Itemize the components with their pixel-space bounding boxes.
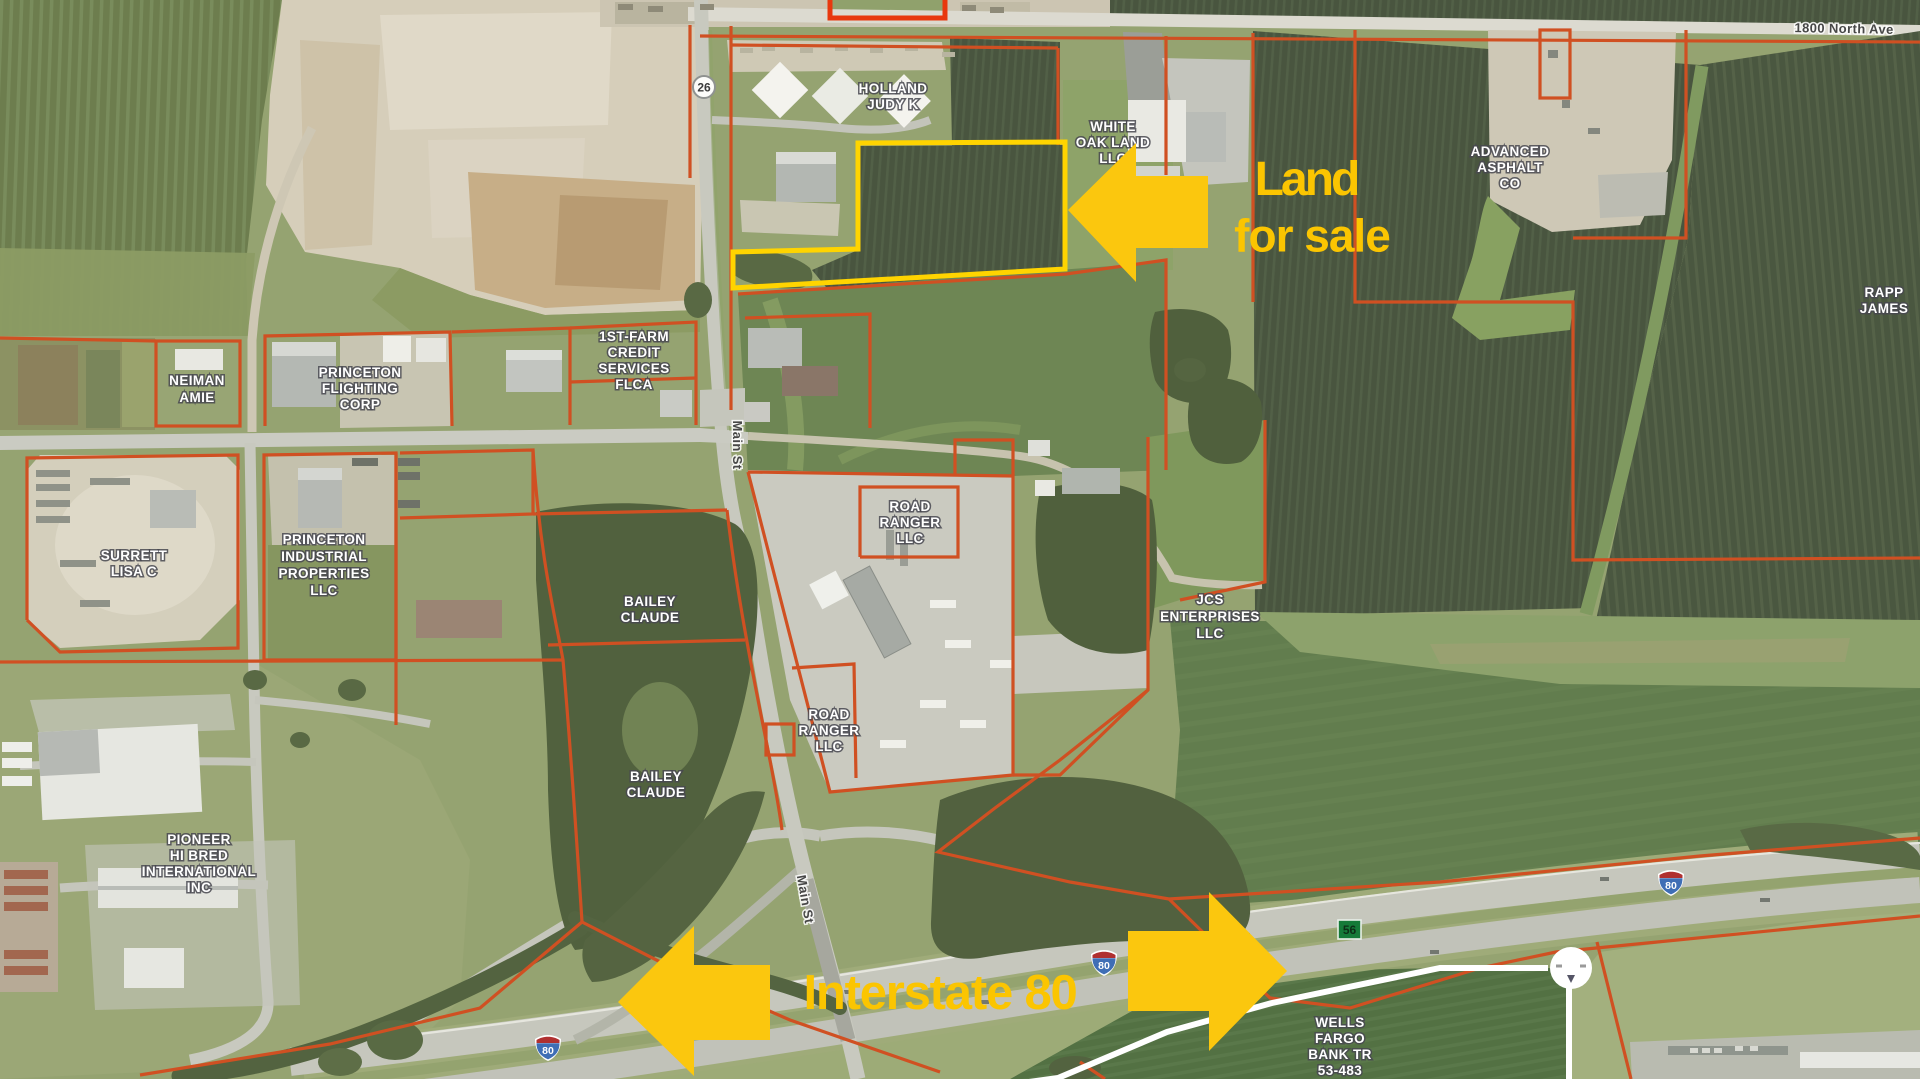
svg-text:HOLLANDJUDY K: HOLLANDJUDY K [859,81,928,112]
svg-text:BAILEYCLAUDE: BAILEYCLAUDE [621,594,680,625]
svg-text:RAPPJAMES: RAPPJAMES [1860,285,1909,316]
svg-text:80: 80 [1665,880,1677,892]
svg-text:for sale: for sale [1234,210,1390,262]
svg-text:Land: Land [1255,153,1358,206]
svg-text:56: 56 [1343,923,1357,937]
svg-text:Main St: Main St [730,420,745,469]
svg-text:BAILEYCLAUDE: BAILEYCLAUDE [627,769,686,800]
svg-text:26: 26 [697,81,711,95]
svg-text:Interstate 80: Interstate 80 [803,966,1076,1020]
svg-text:80: 80 [542,1045,554,1057]
svg-text:1800 North Ave: 1800 North Ave [1794,20,1894,37]
svg-text:80: 80 [1098,960,1110,972]
